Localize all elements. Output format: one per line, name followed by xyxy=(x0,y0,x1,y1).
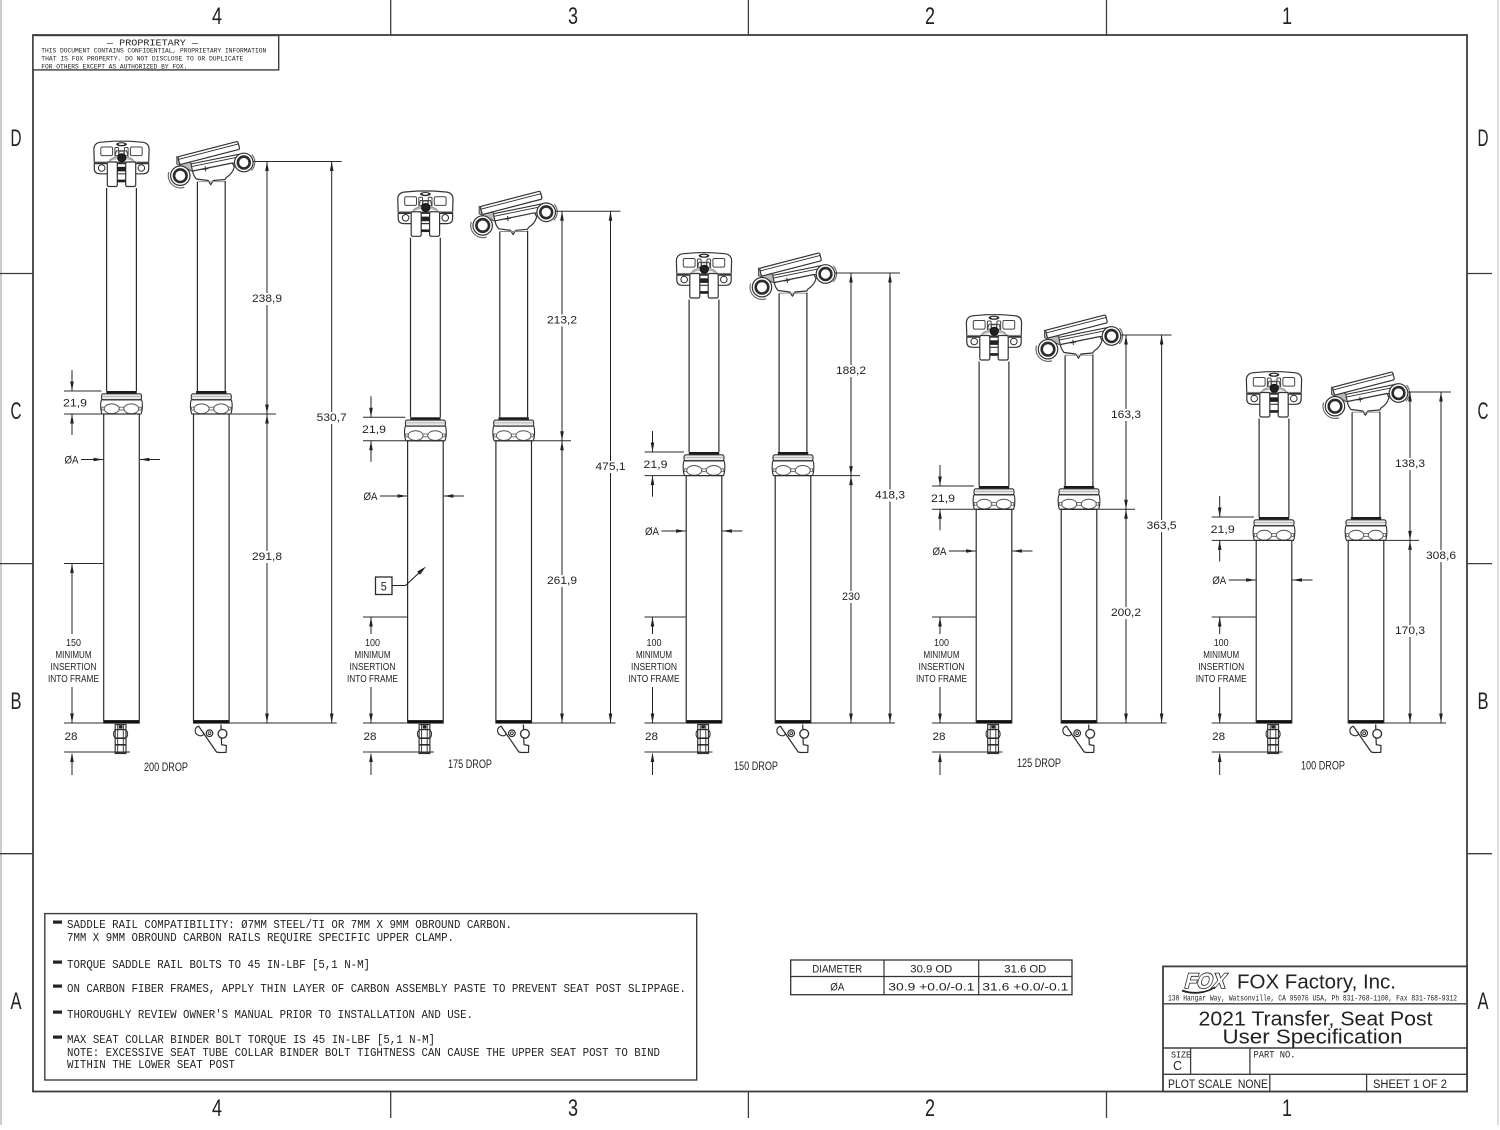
svg-text:THOROUGHLY REVIEW OWNER'S MANU: THOROUGHLY REVIEW OWNER'S MANUAL PRIOR T… xyxy=(67,1008,473,1022)
svg-text:INTO FRAME: INTO FRAME xyxy=(629,673,680,685)
svg-text:MINIMUM: MINIMUM xyxy=(1203,649,1239,661)
svg-text:200,2: 200,2 xyxy=(1111,607,1141,619)
svg-text:4: 4 xyxy=(212,3,222,30)
svg-text:163,3: 163,3 xyxy=(1111,409,1141,421)
svg-text:SADDLE RAIL COMPATIBILITY: Ø7M: SADDLE RAIL COMPATIBILITY: Ø7MM STEEL/TI… xyxy=(67,918,512,932)
svg-text:FOR OTHERS EXCEPT AS AUTHORIZE: FOR OTHERS EXCEPT AS AUTHORIZED BY FOX. xyxy=(41,63,187,70)
svg-text:B: B xyxy=(11,688,22,715)
svg-text:150 DROP: 150 DROP xyxy=(734,761,778,773)
svg-text:3: 3 xyxy=(568,1095,578,1122)
svg-text:C: C xyxy=(11,398,22,425)
svg-text:308,6: 308,6 xyxy=(1426,550,1456,562)
svg-text:A: A xyxy=(11,988,22,1015)
svg-text:5: 5 xyxy=(381,580,387,594)
svg-text:MINIMUM: MINIMUM xyxy=(924,649,960,661)
svg-text:B: B xyxy=(1478,688,1489,715)
svg-text:31.6 OD: 31.6 OD xyxy=(1004,964,1046,976)
svg-text:C: C xyxy=(1173,1058,1182,1073)
svg-text:238,9: 238,9 xyxy=(252,293,282,305)
svg-text:ØA: ØA xyxy=(65,455,80,467)
svg-text:FOX Factory, Inc.: FOX Factory, Inc. xyxy=(1237,972,1396,994)
svg-text:SHEET 1 OF 2: SHEET 1 OF 2 xyxy=(1373,1079,1447,1091)
svg-text:21,9: 21,9 xyxy=(644,459,668,471)
svg-text:1: 1 xyxy=(1282,3,1292,30)
svg-text:THIS DOCUMENT CONTAINS CONFIDE: THIS DOCUMENT CONTAINS CONFIDENTIAL, PRO… xyxy=(41,47,266,54)
svg-text:A: A xyxy=(1478,988,1489,1015)
svg-text:INTO FRAME: INTO FRAME xyxy=(347,673,398,685)
svg-text:28: 28 xyxy=(933,731,946,743)
svg-text:418,3: 418,3 xyxy=(875,490,905,502)
svg-text:188,2: 188,2 xyxy=(836,365,866,377)
svg-text:100: 100 xyxy=(647,637,662,649)
svg-text:MINIMUM: MINIMUM xyxy=(56,649,92,661)
svg-text:28: 28 xyxy=(645,731,658,743)
svg-text:150: 150 xyxy=(66,637,81,649)
svg-text:INTO FRAME: INTO FRAME xyxy=(48,673,99,685)
svg-text:21,9: 21,9 xyxy=(63,398,87,410)
svg-text:INSERTION: INSERTION xyxy=(919,661,965,673)
svg-text:ØA: ØA xyxy=(933,546,948,558)
svg-text:28: 28 xyxy=(65,731,78,743)
svg-text:130 Hangar Way, Watsonville, C: 130 Hangar Way, Watsonville, CA 95076 US… xyxy=(1168,995,1457,1004)
svg-text:2: 2 xyxy=(925,3,935,30)
svg-text:100 DROP: 100 DROP xyxy=(1301,761,1345,773)
svg-text:261,9: 261,9 xyxy=(547,575,577,587)
svg-text:TORQUE SADDLE RAIL BOLTS TO 45: TORQUE SADDLE RAIL BOLTS TO 45 IN-LBF [5… xyxy=(67,958,370,972)
svg-text:D: D xyxy=(1478,125,1489,152)
svg-text:28: 28 xyxy=(364,731,377,743)
svg-text:200 DROP: 200 DROP xyxy=(144,762,188,774)
svg-text:D: D xyxy=(11,125,22,152)
svg-text:THAT IS FOX PROPERTY. DO NOT: THAT IS FOX PROPERTY. DO NOT DISCLOSE TO… xyxy=(41,55,243,62)
svg-text:530,7: 530,7 xyxy=(317,412,347,424)
svg-text:125 DROP: 125 DROP xyxy=(1017,758,1061,770)
svg-text:INTO FRAME: INTO FRAME xyxy=(916,673,967,685)
svg-text:230: 230 xyxy=(842,591,860,603)
svg-text:7MM X 9MM OBROUND CARBON RAILS: 7MM X 9MM OBROUND CARBON RAILS REQUIRE S… xyxy=(67,931,454,945)
svg-text:175 DROP: 175 DROP xyxy=(448,759,492,771)
svg-text:ØA: ØA xyxy=(1212,575,1227,587)
svg-text:475,1: 475,1 xyxy=(596,461,626,473)
svg-text:170,3: 170,3 xyxy=(1395,625,1425,637)
svg-text:21,9: 21,9 xyxy=(362,424,386,436)
svg-text:100: 100 xyxy=(1214,637,1229,649)
svg-text:30.9 OD: 30.9 OD xyxy=(910,964,952,976)
svg-text:ON CARBON FIBER FRAMES, APPLY: ON CARBON FIBER FRAMES, APPLY THIN LAYER… xyxy=(67,982,686,996)
svg-text:MINIMUM: MINIMUM xyxy=(355,649,391,661)
svg-text:138,3: 138,3 xyxy=(1395,458,1425,470)
svg-text:C: C xyxy=(1478,398,1489,425)
svg-text:INSERTION: INSERTION xyxy=(631,661,677,673)
svg-text:MAX SEAT COLLAR BINDER BOLT TO: MAX SEAT COLLAR BINDER BOLT TORQUE IS 45… xyxy=(67,1033,435,1047)
svg-text:INSERTION: INSERTION xyxy=(51,661,97,673)
svg-text:2: 2 xyxy=(925,1095,935,1122)
svg-text:PLOT SCALE NONE: PLOT SCALE NONE xyxy=(1168,1079,1268,1091)
svg-text:21,9: 21,9 xyxy=(931,493,955,505)
svg-text:WITHIN THE LOWER SEAT POST: WITHIN THE LOWER SEAT POST xyxy=(67,1058,235,1072)
svg-text:1: 1 xyxy=(1282,1095,1292,1122)
svg-text:291,8: 291,8 xyxy=(252,551,282,563)
svg-text:3: 3 xyxy=(568,3,578,30)
svg-text:INSERTION: INSERTION xyxy=(350,661,396,673)
svg-text:363,5: 363,5 xyxy=(1147,520,1177,532)
svg-text:213,2: 213,2 xyxy=(547,315,577,327)
svg-text:21,9: 21,9 xyxy=(1211,524,1235,536)
svg-text:MINIMUM: MINIMUM xyxy=(636,649,672,661)
svg-text:28: 28 xyxy=(1212,731,1225,743)
svg-text:ØA: ØA xyxy=(830,982,845,994)
svg-text:INTO FRAME: INTO FRAME xyxy=(1196,673,1247,685)
svg-text:30.9 +0.0/-0.1: 30.9 +0.0/-0.1 xyxy=(888,982,974,994)
svg-text:ØA: ØA xyxy=(364,491,379,503)
svg-text:4: 4 xyxy=(212,1095,222,1122)
svg-text:100: 100 xyxy=(365,637,380,649)
svg-text:FOX: FOX xyxy=(1183,969,1231,993)
svg-text:PART NO.: PART NO. xyxy=(1254,1051,1296,1062)
svg-text:100: 100 xyxy=(934,637,949,649)
svg-text:31.6 +0.0/-0.1: 31.6 +0.0/-0.1 xyxy=(982,982,1068,994)
svg-text:INSERTION: INSERTION xyxy=(1198,661,1244,673)
svg-text:DIAMETER: DIAMETER xyxy=(812,964,862,976)
svg-text:User Specification: User Specification xyxy=(1223,1026,1403,1049)
svg-text:ØA: ØA xyxy=(645,526,660,538)
